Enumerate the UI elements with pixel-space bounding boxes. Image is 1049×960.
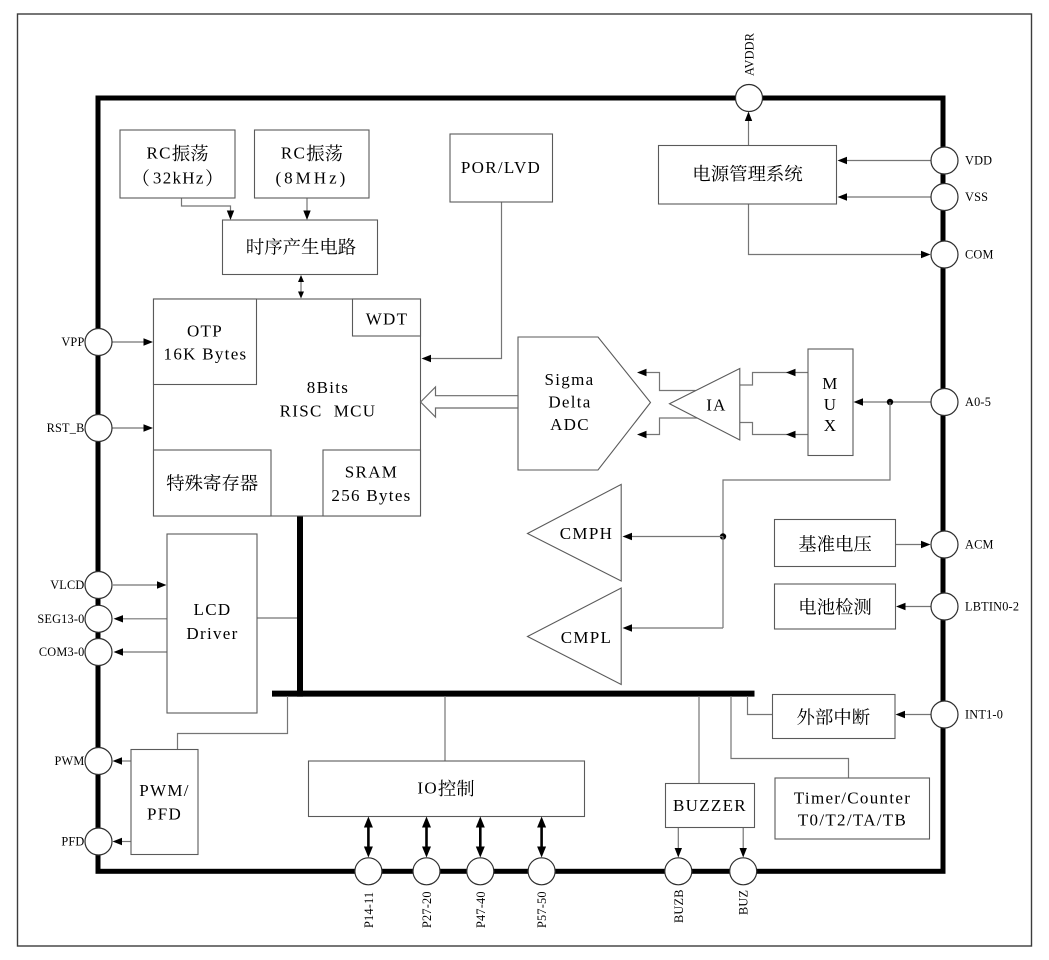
svg-text:PFD: PFD bbox=[147, 805, 182, 824]
svg-text:P47-40: P47-40 bbox=[474, 891, 488, 928]
svg-text:BUZB: BUZB bbox=[672, 889, 686, 923]
svg-text:ACM: ACM bbox=[965, 538, 994, 552]
svg-text:(8MHz): (8MHz) bbox=[276, 169, 349, 188]
svg-text:PWM/: PWM/ bbox=[139, 781, 190, 800]
svg-text:32kHz: 32kHz bbox=[153, 169, 205, 188]
svg-text:M: M bbox=[822, 374, 838, 393]
svg-text:PFD: PFD bbox=[61, 835, 84, 849]
svg-text:AVDDR: AVDDR bbox=[743, 32, 757, 76]
svg-text:16K Bytes: 16K Bytes bbox=[164, 345, 248, 364]
svg-text:P57-50: P57-50 bbox=[535, 891, 549, 928]
svg-text:X: X bbox=[824, 416, 838, 435]
svg-text:8Bits: 8Bits bbox=[307, 378, 349, 397]
svg-text:VPP: VPP bbox=[61, 335, 84, 349]
svg-text:P27-20: P27-20 bbox=[420, 891, 434, 928]
svg-text:VLCD: VLCD bbox=[50, 578, 84, 592]
svg-text:LCD: LCD bbox=[194, 600, 232, 619]
svg-text:Sigma: Sigma bbox=[545, 370, 595, 389]
svg-text:WDT: WDT bbox=[366, 310, 409, 329]
svg-text:RST_B: RST_B bbox=[47, 421, 85, 435]
svg-text:RC: RC bbox=[281, 144, 306, 163]
svg-text:IA: IA bbox=[706, 396, 727, 415]
svg-text:T0/T2/TA/TB: T0/T2/TA/TB bbox=[798, 811, 907, 830]
svg-text:IO: IO bbox=[417, 779, 438, 798]
svg-text:POR/LVD: POR/LVD bbox=[461, 158, 541, 177]
svg-text:P14-11: P14-11 bbox=[362, 892, 376, 928]
svg-text:Driver: Driver bbox=[186, 624, 238, 643]
svg-text:U: U bbox=[824, 395, 838, 414]
svg-text:INT1-0: INT1-0 bbox=[965, 708, 1003, 722]
svg-text:RC: RC bbox=[147, 144, 172, 163]
svg-text:COM3-0: COM3-0 bbox=[39, 645, 85, 659]
svg-text:256 Bytes: 256 Bytes bbox=[331, 486, 411, 505]
svg-text:RISC MCU: RISC MCU bbox=[280, 402, 377, 421]
svg-text:LBTIN0-2: LBTIN0-2 bbox=[965, 600, 1019, 614]
svg-text:A0-5: A0-5 bbox=[965, 395, 991, 409]
svg-text:VSS: VSS bbox=[965, 190, 988, 204]
svg-text:CMPH: CMPH bbox=[560, 524, 613, 543]
svg-text:Delta: Delta bbox=[548, 393, 591, 412]
svg-text:ADC: ADC bbox=[550, 415, 590, 434]
svg-text:PWM: PWM bbox=[55, 754, 85, 768]
svg-text:VDD: VDD bbox=[965, 154, 992, 168]
svg-text:COM: COM bbox=[965, 248, 994, 262]
svg-text:SRAM: SRAM bbox=[345, 463, 398, 482]
svg-text:CMPL: CMPL bbox=[561, 628, 613, 647]
svg-text:SEG13-0: SEG13-0 bbox=[37, 612, 84, 626]
svg-text:BUZZER: BUZZER bbox=[673, 796, 747, 815]
svg-text:OTP: OTP bbox=[187, 322, 223, 341]
svg-text:BUZ: BUZ bbox=[737, 890, 751, 915]
svg-text:Timer/Counter: Timer/Counter bbox=[794, 789, 911, 808]
